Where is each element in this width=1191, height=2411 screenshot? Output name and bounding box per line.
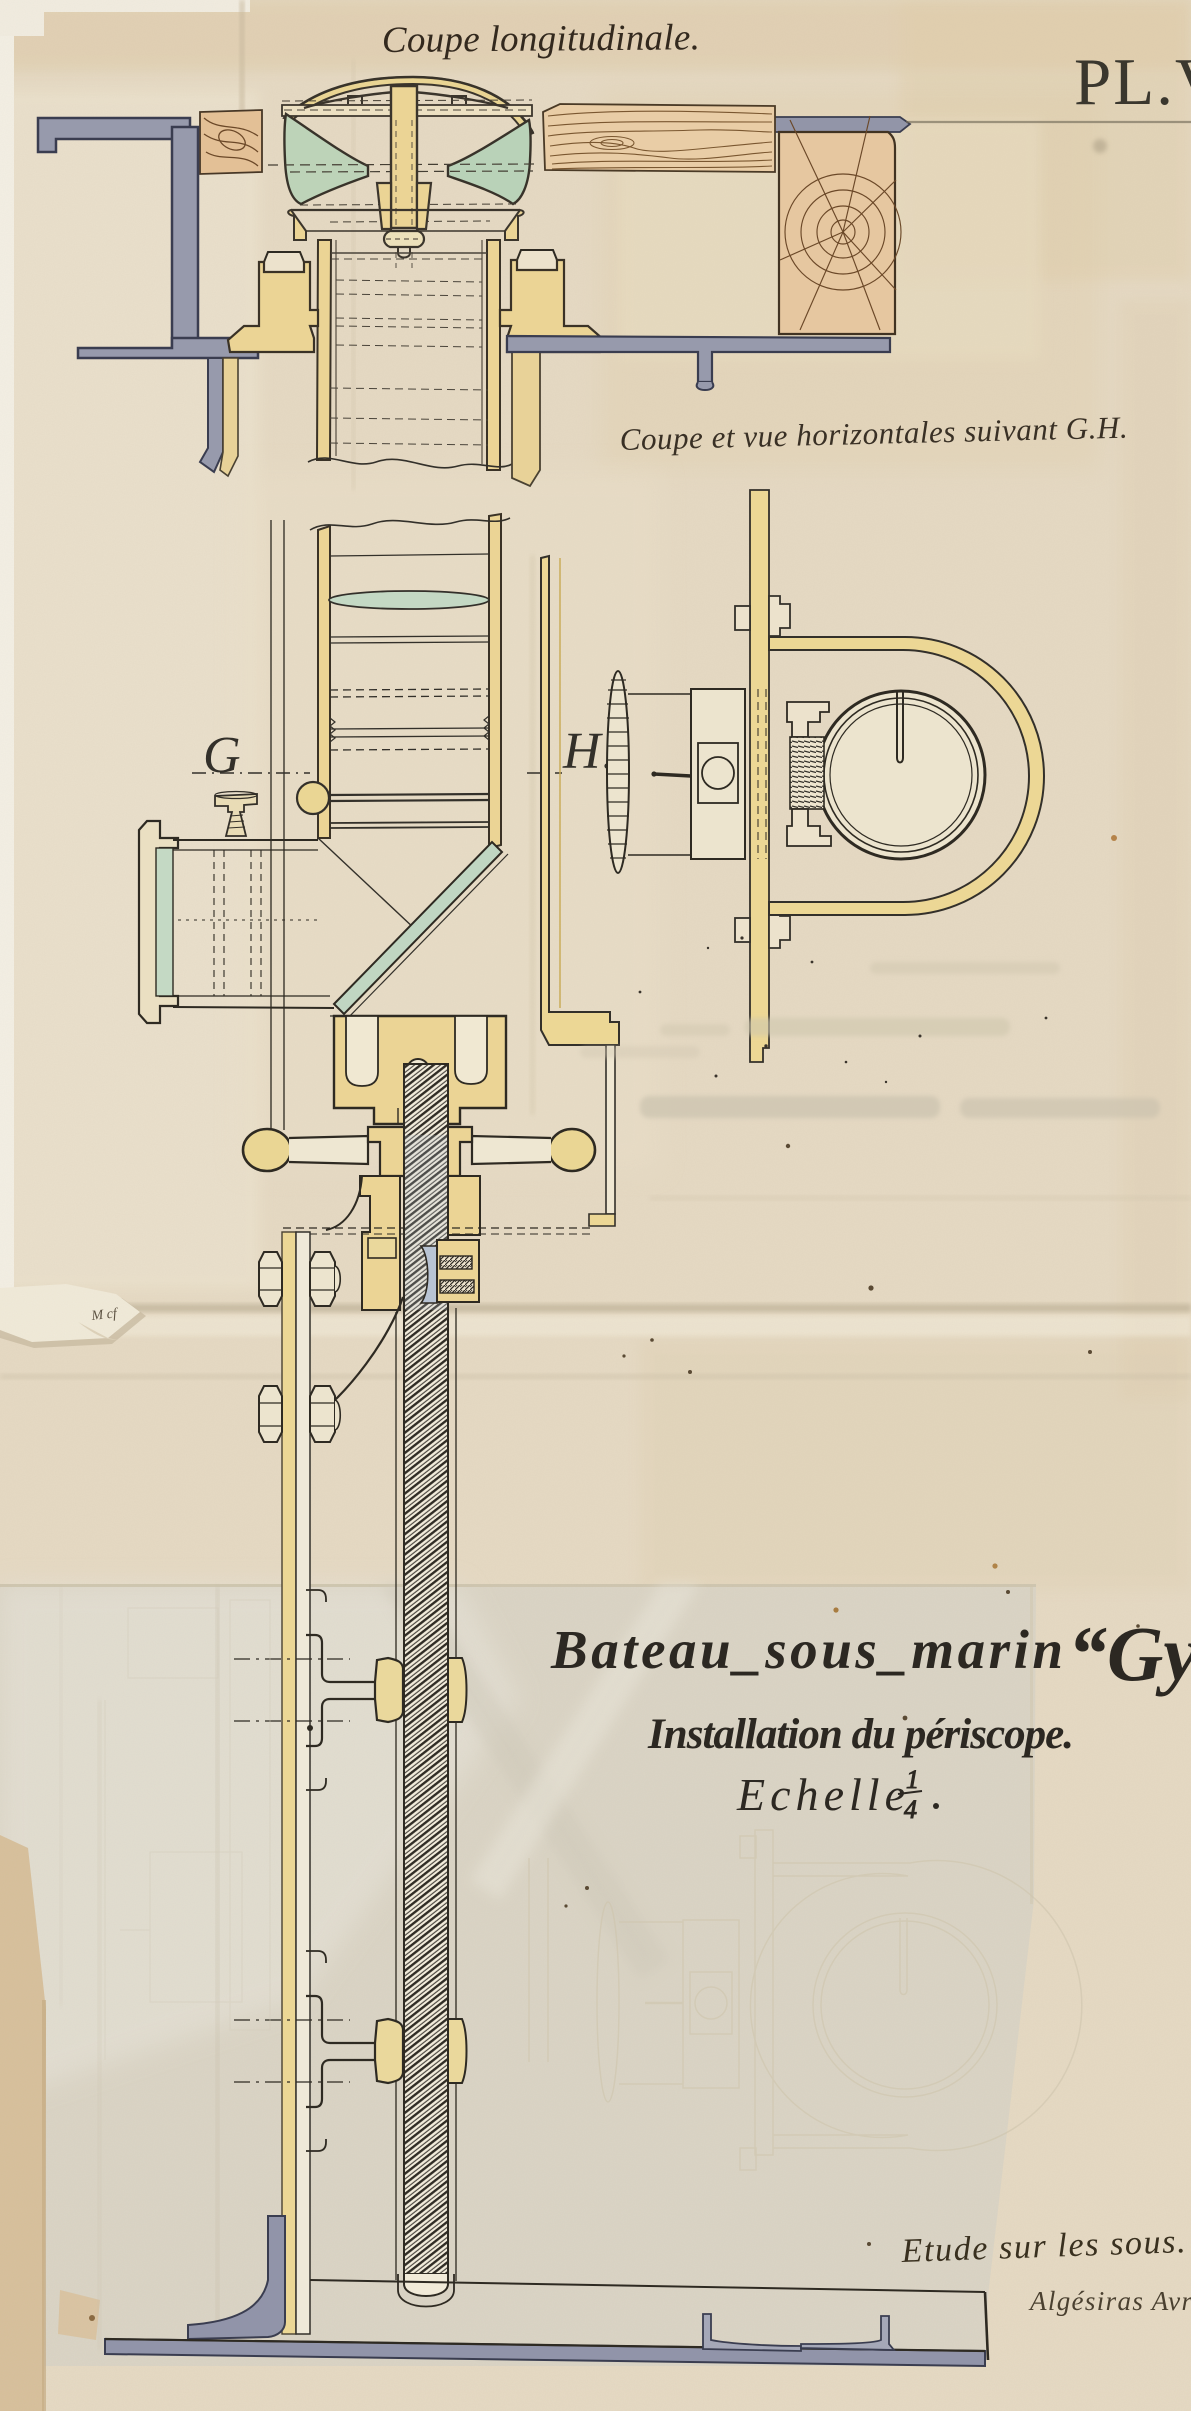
svg-text:PL.V: PL.V xyxy=(1074,45,1191,119)
svg-text:4: 4 xyxy=(904,1795,917,1824)
svg-text:“Gym: “Gym xyxy=(1068,1610,1191,1697)
svg-text:Installation du périscope.: Installation du périscope. xyxy=(647,1711,1074,1758)
svg-text:Algésiras Avr: Algésiras Avr xyxy=(1028,2286,1191,2316)
svg-text:H: H xyxy=(562,723,603,780)
svg-text:Coupe longitudinale.: Coupe longitudinale. xyxy=(382,17,700,61)
svg-text:G: G xyxy=(203,727,241,784)
svg-text:1: 1 xyxy=(906,1765,919,1794)
